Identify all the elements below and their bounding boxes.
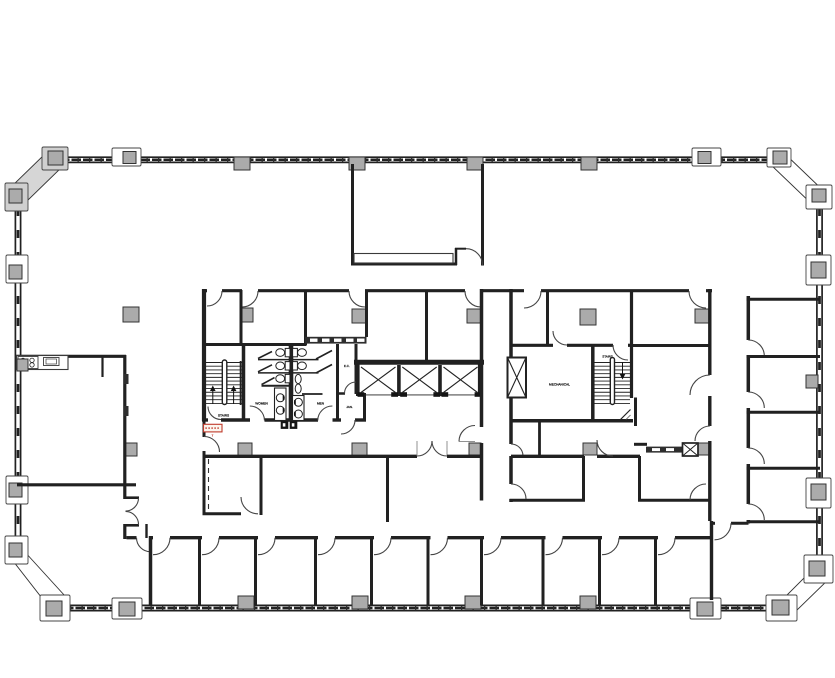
svg-text:MEN: MEN (317, 401, 325, 405)
svg-text:E.C.: E.C. (344, 364, 350, 368)
svg-text:STAIRS: STAIRS (602, 354, 613, 358)
svg-text:MECHANICAL: MECHANICAL (549, 382, 570, 386)
svg-text:STAIRS: STAIRS (218, 414, 229, 418)
svg-text:T: T (212, 434, 214, 438)
svg-text:WOMEN: WOMEN (255, 401, 268, 405)
svg-text:JAN.: JAN. (346, 405, 353, 409)
